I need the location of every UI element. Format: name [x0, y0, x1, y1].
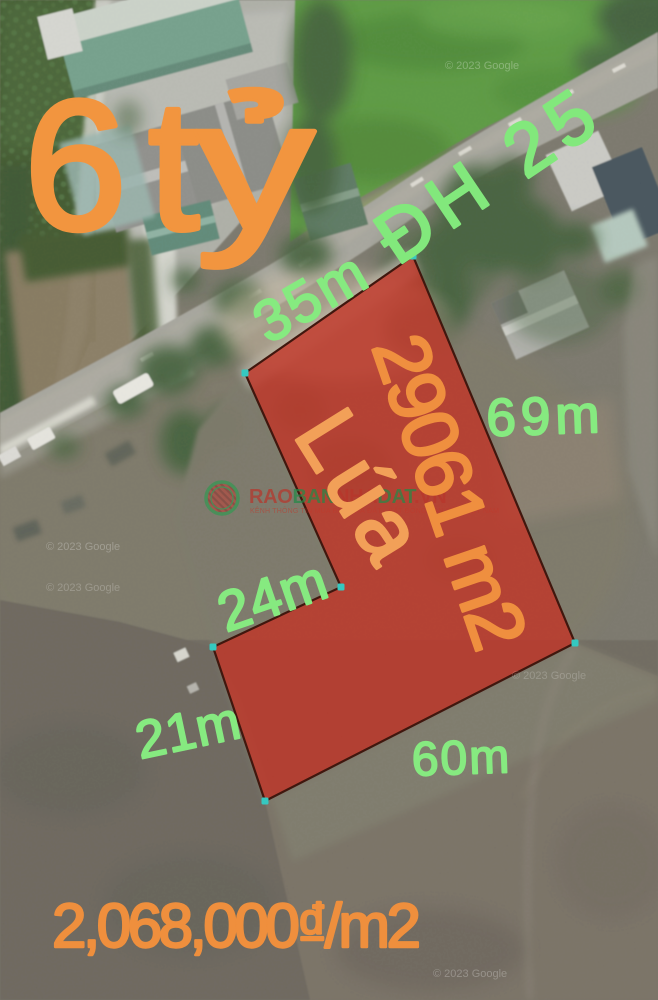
svg-text:© 2023 Google: © 2023 Google: [512, 670, 586, 682]
svg-text:© 2023 Google: © 2023 Google: [46, 582, 120, 594]
svg-text:69m: 69m: [485, 385, 605, 448]
svg-text:t: t: [148, 63, 199, 269]
svg-text:6: 6: [24, 63, 127, 269]
svg-text:2,068,000₫/m2: 2,068,000₫/m2: [52, 892, 419, 961]
svg-text:ỷ: ỷ: [196, 63, 314, 269]
svg-text:© 2023 Google: © 2023 Google: [433, 968, 507, 980]
svg-text:© 2023 Google: © 2023 Google: [46, 541, 120, 553]
svg-text:60m: 60m: [411, 730, 512, 786]
svg-text:© 2023 Google: © 2023 Google: [445, 60, 519, 72]
